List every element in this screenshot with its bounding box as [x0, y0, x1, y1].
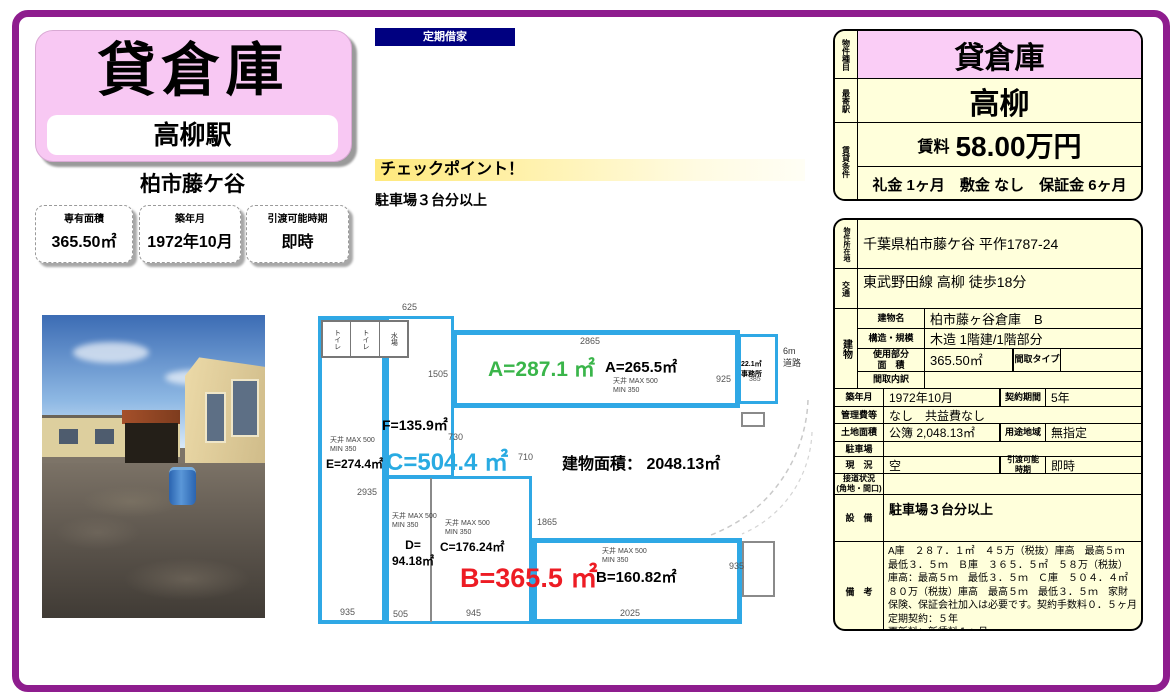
structure-label: 構造・規模	[858, 329, 925, 348]
detail-address-label: 物件所在地	[835, 220, 858, 268]
status-label: 現 況	[835, 457, 884, 473]
dim-935-left: 935	[340, 607, 355, 617]
photo-blue-barrel	[169, 467, 196, 505]
plan-utility-block: トイレ トイレ 水場	[321, 320, 409, 358]
location-text: 柏市藤ケ谷	[35, 168, 350, 198]
info-box-built-value: 1972年10月	[140, 228, 240, 252]
dim-945: 945	[466, 608, 481, 618]
area-a-main-label: A=287.1 ㎡	[488, 353, 595, 383]
handover-label: 引渡可能 時期	[999, 457, 1046, 473]
plan-room-toilet: トイレ	[351, 322, 379, 356]
building-name-value: 柏市藤ヶ谷倉庫 B	[925, 309, 1141, 328]
building-area-label: 建物面積： 2048.13㎡	[562, 450, 720, 474]
summary-card: 物件種目 貸倉庫 最寄駅 高柳 賃貸条件 賃料 58.00万円 礼金 1ヶ月 敷…	[833, 29, 1143, 201]
photo-ground	[42, 463, 265, 618]
parking-label: 駐車場	[835, 442, 884, 456]
parking-value	[884, 442, 1141, 456]
zone-value: 無指定	[1046, 424, 1141, 441]
used-area-value: 365.50㎡	[925, 349, 1012, 371]
plan-room-sink: 水場	[380, 322, 407, 356]
ceiling-note-a: 天井 MAX 500 MIN 350	[613, 378, 658, 396]
madori-type-value	[1061, 349, 1141, 371]
summary-type-value: 貸倉庫	[858, 31, 1141, 78]
dim-710: 710	[518, 452, 533, 462]
zone-label: 用途地域	[999, 424, 1046, 441]
dim-505: 505	[393, 609, 408, 619]
summary-station-label: 最寄駅	[835, 79, 858, 122]
ceiling-note-e: 天井 MAX 500 MIN 350	[330, 437, 375, 455]
detail-transport-label: 交通	[835, 269, 858, 308]
madori-detail-label: 間取内訳	[858, 372, 925, 388]
dim-385: 385	[749, 376, 761, 383]
plan-annex-b	[742, 541, 775, 597]
dim-2865: 2865	[580, 336, 600, 346]
detail-card: 物件所在地 千葉県柏市藤ケ谷 平作1787-24 交通 東武野田線 高柳 徒歩1…	[833, 218, 1143, 631]
handover-value: 即時	[1046, 457, 1141, 473]
area-a-sub-label: A=265.5㎡	[605, 356, 677, 377]
summary-terms-label: 賃貸条件	[835, 123, 858, 201]
status-value: 空	[884, 457, 999, 473]
info-box-area-label: 専有面積	[36, 210, 132, 225]
info-box-handover-label: 引渡可能時期	[247, 210, 348, 225]
info-box-area: 専有面積 365.50㎡	[35, 205, 133, 263]
dim-2935: 2935	[357, 487, 377, 497]
plan-room-toilet: トイレ	[323, 322, 351, 356]
fixed-term-lease-badge: 定期借家	[375, 28, 515, 46]
ceiling-note-c: 天井 MAX 500 MIN 350	[445, 520, 490, 538]
info-box-built: 築年月 1972年10月	[139, 205, 241, 263]
built-value: 1972年10月	[884, 389, 999, 406]
photo-dark-opening	[125, 423, 179, 465]
built-label: 築年月	[835, 389, 884, 406]
checkpoint-banner: チェックポイント！	[375, 159, 805, 181]
land-label: 土地面積	[835, 424, 884, 441]
rent-value: 58.00万円	[955, 125, 1081, 165]
road-status-value	[884, 474, 1141, 494]
dim-625: 625	[402, 302, 417, 312]
area-b-main-label: B=365.5 ㎡	[460, 556, 597, 595]
info-box-handover: 引渡可能時期 即時	[246, 205, 349, 263]
detail-building-label: 建物	[835, 309, 858, 388]
fees-value: なし 共益費なし	[884, 407, 1141, 423]
info-box-handover-value: 即時	[247, 228, 348, 252]
dim-925: 925	[716, 374, 731, 384]
detail-transport-value: 東武野田線 高柳 徒歩18分	[858, 269, 1141, 308]
ceiling-note-d: 天井 MAX 500 MIN 350	[392, 513, 437, 531]
used-area-label: 使用部分 面 積	[858, 349, 925, 371]
remarks-label: 備 考	[835, 542, 884, 631]
ceiling-note-b: 天井 MAX 500 MIN 350	[602, 548, 647, 566]
contract-value: 5年	[1046, 389, 1141, 406]
flyer-page: 貸倉庫 高柳駅 柏市藤ケ谷 専有面積 365.50㎡ 築年月 1972年10月 …	[0, 0, 1171, 696]
road-label: 6m 道路	[783, 346, 801, 369]
info-box-area-value: 365.50㎡	[36, 228, 132, 252]
area-b-sub-label: B=160.82㎡	[596, 566, 676, 587]
dim-1505: 1505	[428, 369, 448, 379]
property-photo	[42, 315, 265, 618]
checkpoint-note: 駐車場３台分以上	[375, 190, 487, 210]
property-type-card: 貸倉庫 高柳駅	[35, 30, 352, 162]
dim-1865: 1865	[537, 517, 557, 527]
madori-detail-value	[925, 372, 1141, 388]
equipment-label: 設 備	[835, 495, 884, 541]
fees-label: 管理費等	[835, 407, 884, 423]
station-name-box: 高柳駅	[47, 115, 338, 155]
area-c-main-label: C=504.4 ㎡	[386, 442, 508, 477]
area-e-label: E=274.4㎡	[326, 455, 383, 472]
area-d-label: D= 94.18㎡	[392, 538, 434, 569]
dim-935-right: 935	[729, 561, 744, 571]
dim-2025: 2025	[620, 608, 640, 618]
remarks-value: A庫 ２８７．１㎡ ４５万（税抜）庫高 最高５ｍ 最低３．５ｍ Ｂ庫 ３６５．５…	[884, 542, 1141, 631]
dim-730: 730	[448, 432, 463, 442]
contract-label: 契約期間	[999, 389, 1046, 406]
land-value: 公簿 2,048.13㎡	[884, 424, 999, 441]
structure-value: 木造 1階建/1階部分	[925, 329, 1141, 348]
area-c-sub-label: C=176.24㎡	[440, 538, 504, 555]
summary-station-value: 高柳	[858, 79, 1141, 122]
rent-label: 賃料	[917, 133, 949, 157]
lease-terms-value: 礼金 1ヶ月 敷金 なし 保証金 6ヶ月	[858, 167, 1141, 201]
equipment-value: 駐車場３台分以上	[884, 495, 1141, 541]
area-f-label: F=135.9㎡	[382, 415, 448, 435]
road-status-label: 接道状況 (角地・間口)	[835, 474, 884, 494]
detail-address-value: 千葉県柏市藤ケ谷 平作1787-24	[858, 220, 1141, 268]
info-box-built-label: 築年月	[140, 210, 240, 225]
summary-type-label: 物件種目	[835, 31, 858, 78]
building-name-label: 建物名	[858, 309, 925, 328]
madori-type-label: 間取タイプ	[1012, 349, 1061, 371]
property-type-title: 貸倉庫	[36, 31, 351, 111]
